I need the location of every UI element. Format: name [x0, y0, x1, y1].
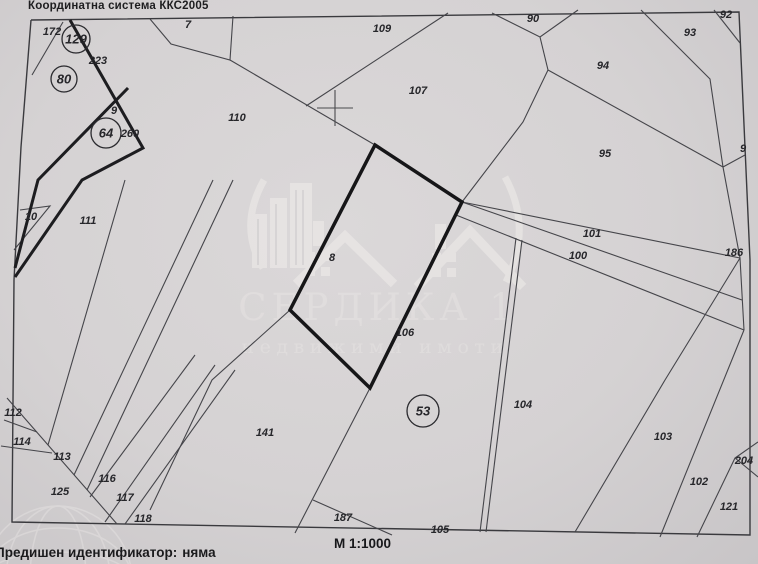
coordinate-system-title: Координатна система ККС2005 [28, 0, 209, 12]
watermark-brand-text: СЕРДИКА 1 [238, 286, 518, 329]
parcel-label-100: 100 [569, 250, 588, 262]
svg-text:64: 64 [99, 126, 114, 141]
parcel-label-9r: 9 [740, 143, 747, 155]
previous-identifier-value: няма [182, 545, 215, 560]
circled-parcel-80: 80 [51, 66, 77, 92]
parcel-label-103: 103 [654, 431, 672, 443]
parcel-label-113: 113 [53, 451, 71, 463]
svg-text:129: 129 [65, 32, 87, 47]
parcel-label-94: 94 [597, 60, 609, 72]
parcel-label-107: 107 [409, 85, 428, 97]
watermark-buildings-icon [252, 183, 312, 268]
parcel-label-92: 92 [720, 9, 732, 21]
parcel-label-187: 187 [334, 512, 353, 524]
road-lines-bold [15, 20, 143, 277]
cadastral-map: СЕРДИКА 1 недвижими имоти [0, 0, 758, 564]
parcel-label-116: 116 [98, 473, 116, 485]
parcel-label-121: 121 [720, 501, 738, 513]
parcel-label-90: 90 [527, 13, 540, 25]
parcel-label-95: 95 [599, 148, 612, 160]
parcel-label-9l: 9 [111, 105, 118, 117]
parcel-label-105: 105 [431, 524, 450, 536]
parcel-label-186: 186 [725, 247, 744, 259]
parcel-label-112: 112 [4, 407, 22, 419]
previous-identifier-label: Предишен идентификатор: [0, 545, 177, 560]
svg-text:80: 80 [57, 72, 72, 87]
circled-parcel-64: 64 [91, 118, 121, 148]
parcel-label-260: 260 [120, 128, 140, 140]
map-scale-label: М 1:1000 [334, 536, 391, 551]
watermark-logo: СЕРДИКА 1 недвижими имоти [238, 177, 523, 358]
parcel-label-141: 141 [256, 427, 274, 439]
parcel-label-172: 172 [43, 26, 61, 38]
parcel-label-204: 204 [734, 455, 753, 467]
parcel-label-101: 101 [583, 228, 601, 240]
parcel-label-104: 104 [514, 399, 532, 411]
parcel-label-223: 223 [88, 55, 107, 67]
previous-identifier-line: Предишен идентификатор:няма [0, 545, 216, 560]
parcel-label-102: 102 [690, 476, 708, 488]
cadastral-map-photo: СЕРДИКА 1 недвижими имоти [0, 0, 758, 564]
parcel-label-118: 118 [134, 513, 152, 525]
parcel-label-7: 7 [185, 19, 192, 31]
circled-parcel-53: 53 [407, 395, 439, 427]
parcel-label-117: 117 [116, 492, 134, 504]
parcel-label-110: 110 [228, 112, 246, 124]
parcel-label-10: 10 [25, 211, 38, 223]
svg-text:53: 53 [416, 404, 431, 419]
watermark-tagline-text: недвижими имоти [241, 336, 508, 358]
parcel-label-109: 109 [373, 23, 392, 35]
parcel-label-125: 125 [51, 486, 70, 498]
parcel-label-111: 111 [80, 215, 97, 227]
parcel-label-106: 106 [396, 327, 415, 339]
parcel-label-8: 8 [329, 252, 336, 264]
parcel-label-114: 114 [13, 436, 31, 448]
parcel-label-93: 93 [684, 27, 696, 39]
